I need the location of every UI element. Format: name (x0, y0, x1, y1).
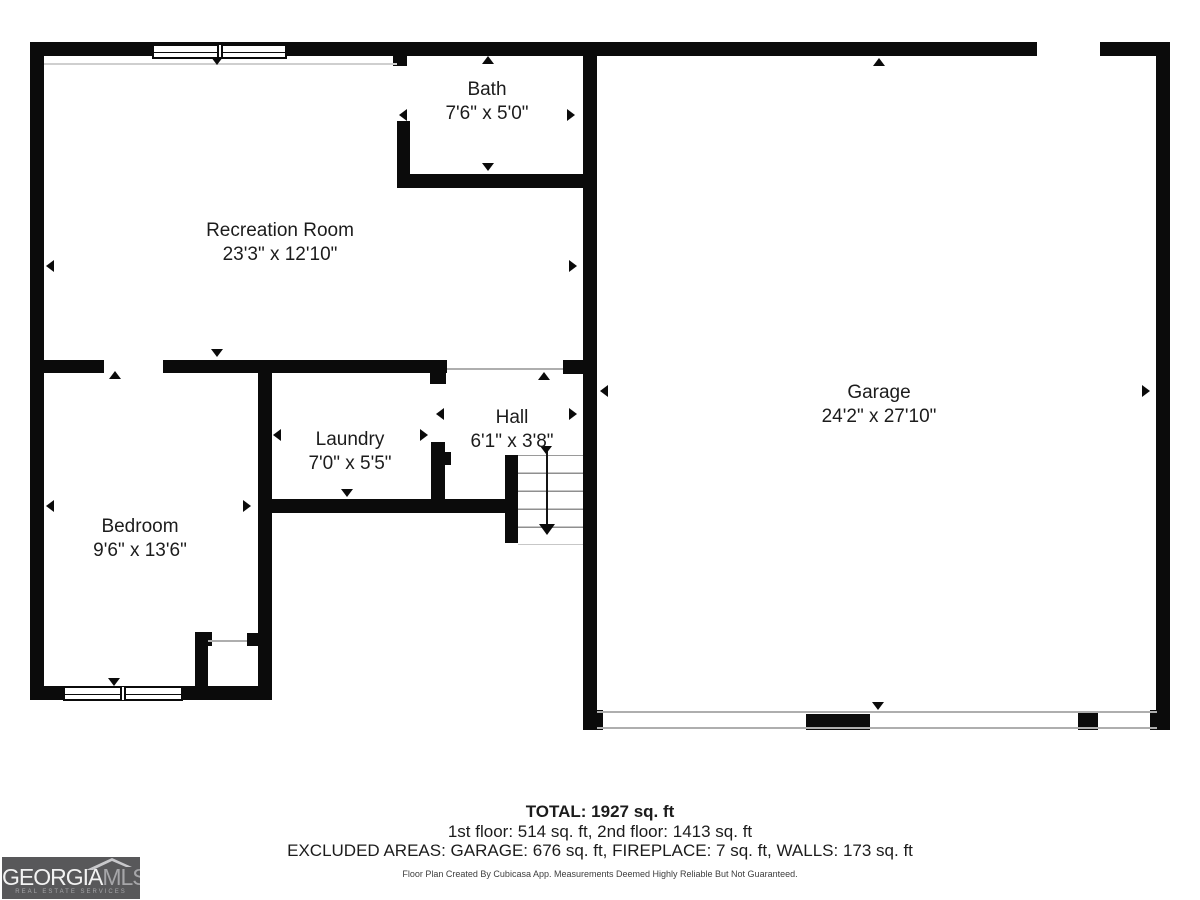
measure-arrow-icon (243, 500, 251, 512)
measure-arrow-icon (46, 500, 54, 512)
floor-plan: Bath 7'6" x 5'0" Recreation Room 23'3" x… (0, 0, 1200, 900)
garage-door-line-bottom (597, 727, 1157, 729)
measure-arrow-icon (873, 58, 885, 66)
window-divider (120, 687, 126, 700)
measure-arrow-icon (482, 163, 494, 171)
hall-opening-line (447, 368, 563, 370)
measure-arrow-icon (46, 260, 54, 272)
wall-closet-right-stub (247, 633, 259, 646)
room-name: Recreation Room (206, 220, 354, 241)
excluded-areas-text: EXCLUDED AREAS: GARAGE: 676 sq. ft, FIRE… (0, 841, 1200, 860)
measure-arrow-icon (341, 489, 353, 497)
room-label-laundry: Laundry 7'0" x 5'5" (308, 428, 391, 476)
room-label-hall: Hall 6'1" x 3'8" (470, 406, 553, 454)
floor-areas-text: 1st floor: 514 sq. ft, 2nd floor: 1413 s… (0, 822, 1200, 841)
room-label-bedroom: Bedroom 9'6" x 13'6" (93, 515, 187, 563)
room-label-recreation: Recreation Room 23'3" x 12'10" (206, 219, 354, 267)
measure-arrow-icon (420, 429, 428, 441)
measure-arrow-icon (482, 56, 494, 64)
window-center-marker-icon (108, 678, 120, 686)
logo-mls: MLS (102, 864, 140, 890)
measure-arrow-icon (569, 408, 577, 420)
room-dimensions: 7'0" x 5'5" (308, 452, 391, 476)
measure-arrow-icon (436, 408, 444, 420)
room-dimensions: 23'3" x 12'10" (206, 243, 354, 267)
wall-bath-bottom (397, 174, 597, 188)
measure-arrow-icon (211, 349, 223, 357)
room-name: Garage (847, 382, 910, 403)
measure-arrow-icon (600, 385, 608, 397)
measure-arrow-icon (109, 371, 121, 379)
room-dimensions: 24'2" x 27'10" (822, 405, 937, 429)
room-dimensions: 7'6" x 5'0" (445, 102, 528, 126)
wall-rec-bottom-mid (163, 360, 447, 373)
area-summary: TOTAL: 1927 sq. ft 1st floor: 514 sq. ft… (0, 802, 1200, 880)
wall-laundry-hall-nub (444, 452, 451, 465)
stairs-down-arrow (546, 448, 548, 526)
wall-laundry-bottom (258, 499, 518, 513)
window-bedroom (63, 686, 183, 701)
total-area-text: TOTAL: 1927 sq. ft (0, 802, 1200, 822)
room-dimensions: 9'6" x 13'6" (93, 539, 187, 563)
georgia-mls-logo: GEORGIAMLS REAL ESTATE SERVICES (2, 857, 140, 899)
measure-arrow-icon (273, 429, 281, 441)
garage-door-center-marker-icon (872, 702, 884, 710)
wall-bedroom-right (258, 366, 272, 700)
stairs-down-arrowhead-icon (539, 524, 555, 535)
wall-right-exterior (1156, 42, 1170, 730)
room-dimensions: 6'1" x 3'8" (470, 430, 553, 454)
logo-georgia: GEORGIA (2, 864, 102, 890)
closet-opening-line (208, 640, 247, 642)
wall-rec-bottom-left (30, 360, 104, 373)
room-label-garage: Garage 24'2" x 27'10" (822, 381, 937, 429)
wall-hall-top-stub (563, 360, 597, 374)
room-name: Hall (496, 407, 529, 428)
logo-wordmark: GEORGIAMLS (2, 866, 140, 889)
measure-arrow-icon (538, 372, 550, 380)
wall-laundry-hall-div (431, 442, 445, 506)
wall-garage-west (583, 48, 597, 730)
disclaimer-text: Floor Plan Created By Cubicasa App. Meas… (0, 869, 1200, 880)
logo-tagline: REAL ESTATE SERVICES (2, 889, 140, 895)
room-name: Bath (467, 79, 506, 100)
window-center-marker-icon (211, 57, 223, 65)
garage-door-line-top (597, 711, 1157, 713)
measure-arrow-icon (569, 260, 577, 272)
room-label-bath: Bath 7'6" x 5'0" (445, 78, 528, 126)
wall-laundry-hall-stub (430, 360, 446, 384)
measure-arrow-icon (399, 109, 407, 121)
measure-arrow-icon (1142, 385, 1150, 397)
room-name: Laundry (316, 429, 385, 450)
room-name: Bedroom (101, 516, 178, 537)
wall-closet-left-stub (195, 632, 212, 646)
measure-arrow-icon (567, 109, 575, 121)
